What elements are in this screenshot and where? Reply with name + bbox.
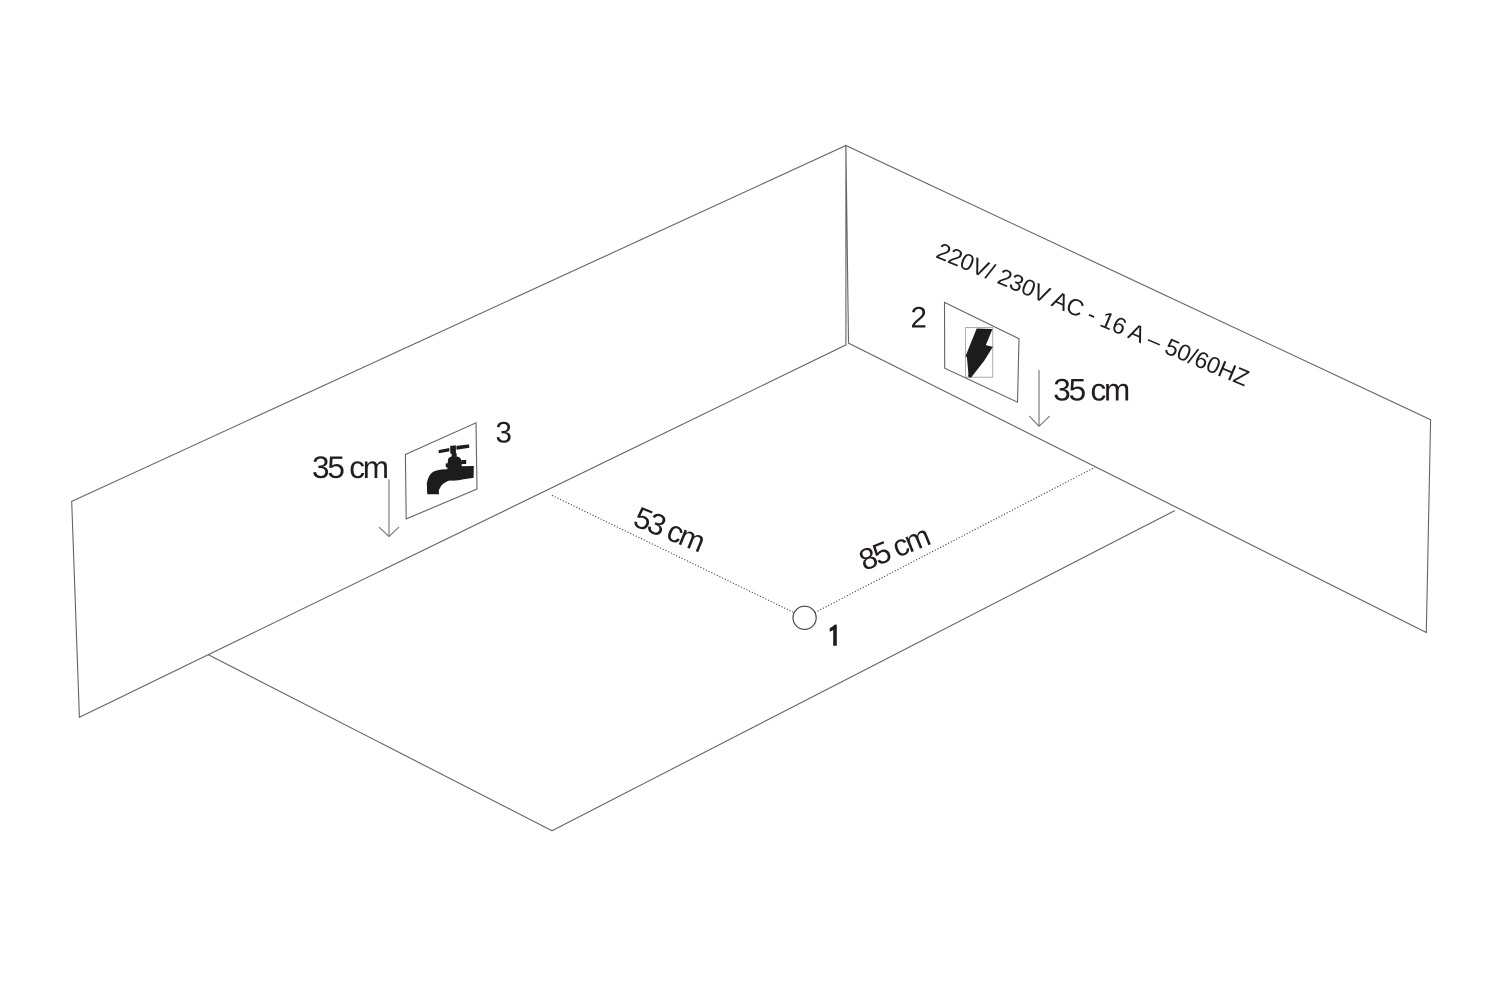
svg-text:35 cm: 35 cm — [312, 449, 388, 485]
svg-text:2: 2 — [911, 302, 927, 335]
svg-text:35 cm: 35 cm — [1053, 372, 1129, 408]
svg-text:3: 3 — [496, 417, 512, 450]
